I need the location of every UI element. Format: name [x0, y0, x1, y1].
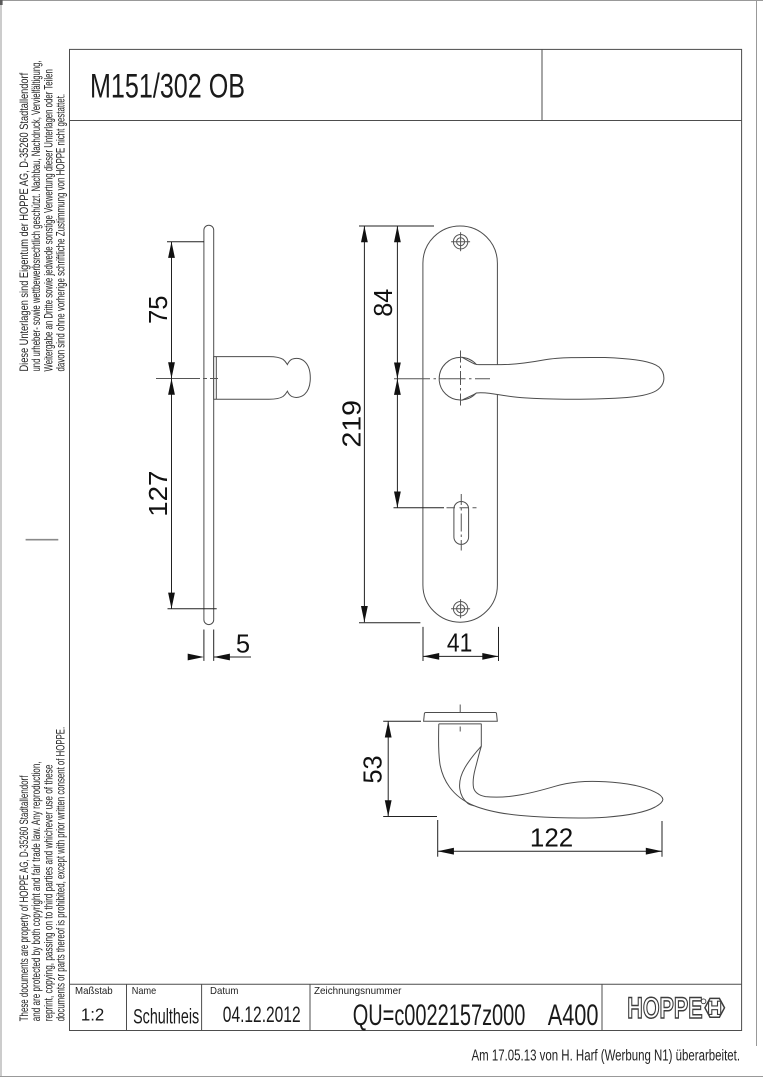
svg-text:Name: Name	[132, 985, 157, 997]
svg-text:41: 41	[447, 628, 472, 658]
svg-text:Datum: Datum	[210, 985, 239, 997]
svg-text:HOPPE: HOPPE	[627, 992, 702, 1025]
svg-text:1:2: 1:2	[81, 1005, 104, 1025]
svg-text:davon sind ohne vorherige schr: davon sind ohne vorherige schriftliche Z…	[54, 94, 68, 372]
svg-text:04.12.2012: 04.12.2012	[223, 1002, 301, 1027]
svg-text:127: 127	[143, 471, 173, 517]
svg-text:M151/302 OB: M151/302 OB	[90, 68, 245, 106]
svg-text:219: 219	[336, 400, 366, 448]
svg-text:Am 17.05.13 von H. Harf (Werbu: Am 17.05.13 von H. Harf (Werbung N1) übe…	[472, 1048, 741, 1065]
svg-text:Maßstab: Maßstab	[75, 985, 113, 997]
svg-text:75: 75	[143, 296, 173, 325]
svg-text:53: 53	[358, 755, 388, 783]
svg-text:QU=c0022157z000: QU=c0022157z000	[353, 999, 526, 1032]
svg-text:122: 122	[530, 823, 573, 853]
svg-text:84: 84	[368, 289, 398, 317]
svg-text:A400: A400	[548, 999, 599, 1032]
svg-text:5: 5	[236, 629, 250, 659]
svg-text:Schultheis: Schultheis	[133, 1005, 199, 1028]
svg-text:Zeichnungsnummer: Zeichnungsnummer	[314, 985, 402, 997]
svg-text:documents or parts thereof is: documents or parts thereof is prohibited…	[54, 727, 68, 1022]
